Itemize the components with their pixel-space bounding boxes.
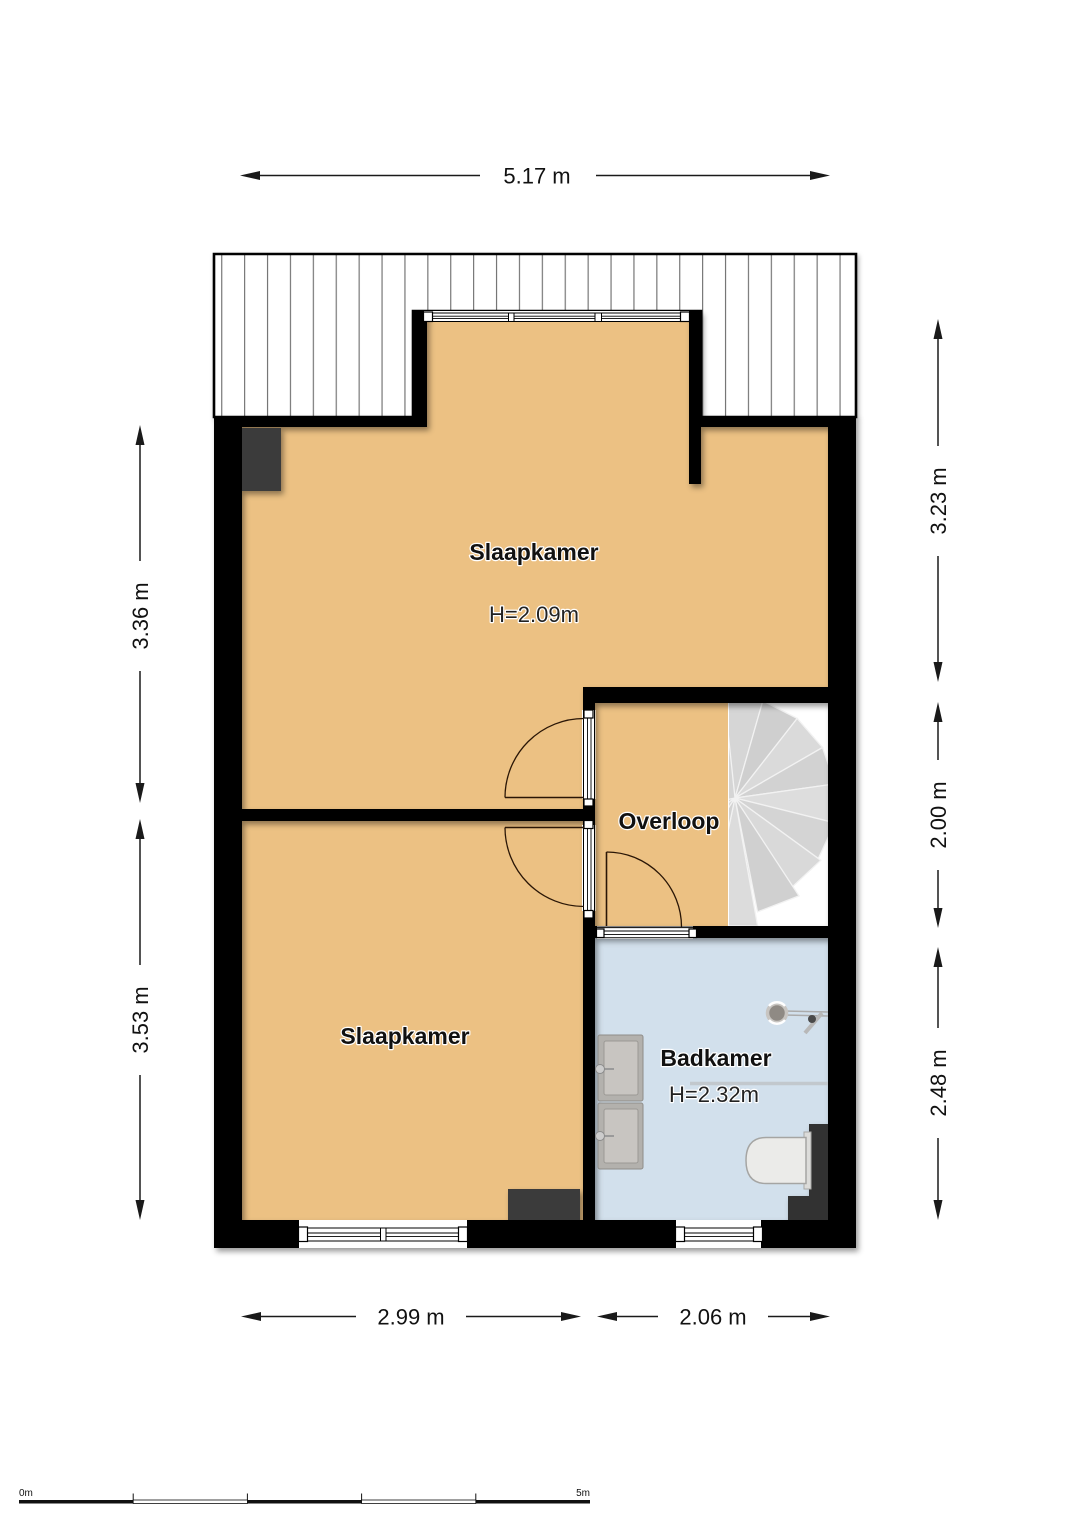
svg-text:5m: 5m	[576, 1488, 590, 1499]
svg-text:3.23 m: 3.23 m	[926, 467, 951, 534]
svg-text:5.17 m: 5.17 m	[503, 164, 570, 189]
svg-text:Slaapkamer: Slaapkamer	[469, 539, 598, 565]
svg-text:Badkamer: Badkamer	[660, 1045, 771, 1071]
svg-text:0m: 0m	[19, 1488, 33, 1499]
svg-text:Slaapkamer: Slaapkamer	[340, 1023, 469, 1049]
svg-text:3.53 m: 3.53 m	[128, 986, 153, 1053]
svg-text:H=2.09m: H=2.09m	[489, 602, 579, 627]
svg-text:H=2.32m: H=2.32m	[669, 1082, 759, 1107]
svg-text:2.48 m: 2.48 m	[926, 1049, 951, 1116]
svg-text:2.00 m: 2.00 m	[926, 781, 951, 848]
svg-text:2.99 m: 2.99 m	[377, 1305, 444, 1330]
svg-text:3.36 m: 3.36 m	[128, 582, 153, 649]
svg-text:Overloop: Overloop	[619, 808, 720, 834]
svg-text:2.06 m: 2.06 m	[679, 1305, 746, 1330]
